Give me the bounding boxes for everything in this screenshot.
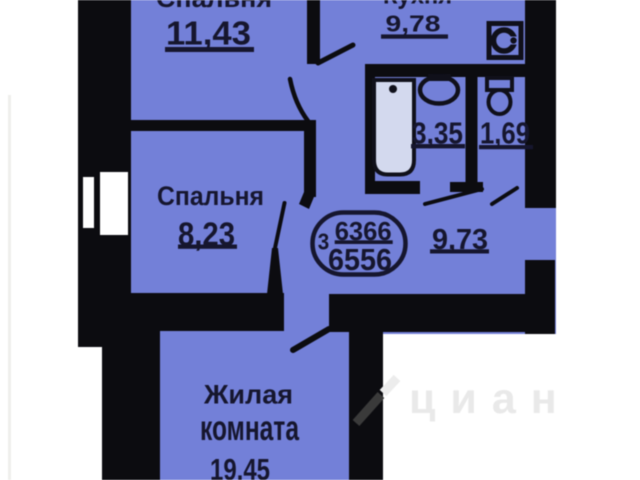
svg-text:9,78: 9,78 — [386, 11, 441, 37]
svg-text:Жилая: Жилая — [203, 380, 293, 410]
svg-text:Спальня: Спальня — [156, 0, 272, 13]
svg-text:комната: комната — [200, 409, 299, 448]
svg-text:Кухня: Кухня — [383, 0, 452, 10]
svg-text:циан: циан — [409, 375, 572, 423]
svg-text:6556: 6556 — [328, 242, 392, 277]
svg-text:19,45: 19,45 — [210, 452, 270, 480]
svg-text:Спальня: Спальня — [157, 181, 264, 211]
